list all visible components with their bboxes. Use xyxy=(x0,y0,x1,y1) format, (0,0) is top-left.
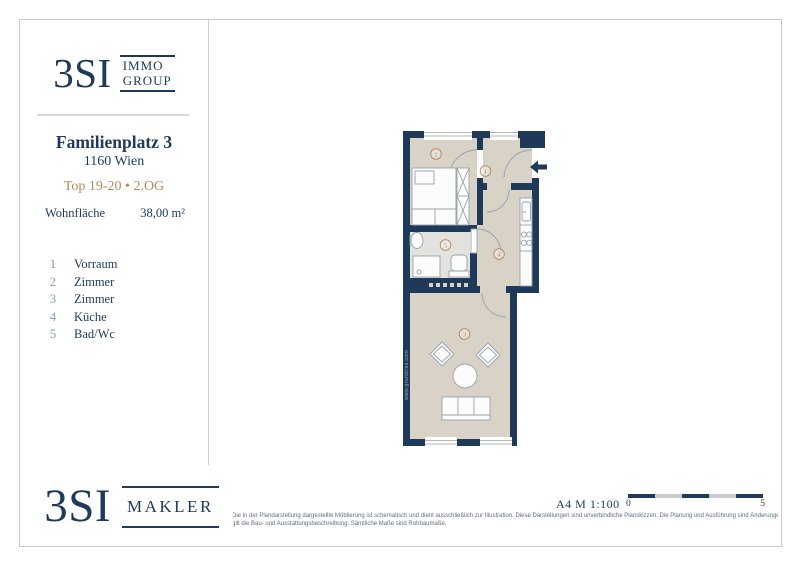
room-number: 1 xyxy=(46,257,60,272)
brand-words: IMMO GROUP xyxy=(120,55,175,91)
logo-divider xyxy=(37,114,189,116)
area-label: Wohnfläche xyxy=(45,206,105,221)
brand-word-2: GROUP xyxy=(123,74,172,88)
room-list-item: 1 Vorraum xyxy=(46,257,208,275)
room-label-5: 5 xyxy=(440,240,451,251)
area-row: Wohnfläche 38,00 m² xyxy=(20,206,208,221)
doorway-kitchen-room3 xyxy=(480,286,506,293)
room-list-item: 5 Bad/Wc xyxy=(46,327,208,345)
wardrobe xyxy=(457,168,469,225)
scale-segment xyxy=(628,494,655,498)
room-label-4: 4 xyxy=(494,249,505,260)
sofa xyxy=(442,397,490,420)
room-list-item: 4 Küche xyxy=(46,310,208,328)
scale-end-label: 5 xyxy=(760,499,765,509)
room-number: 4 xyxy=(46,310,60,325)
svg-text:2: 2 xyxy=(434,151,437,158)
watermark: www.grundriss.com xyxy=(404,350,410,400)
area-value: 38,00 m² xyxy=(140,206,185,221)
address-line1: Familienplatz 3 xyxy=(20,132,208,153)
disclaimer-line2: gilt die Bau- und Ausstattungsbeschreibu… xyxy=(232,520,778,528)
disclaimer: Die in der Plandarstellung dargestellte … xyxy=(232,512,778,528)
door-leaf xyxy=(471,229,477,253)
brand-logo-immogroup: 3SI IMMO GROUP xyxy=(20,53,208,94)
room-list-item: 3 Zimmer xyxy=(46,292,208,310)
window xyxy=(490,129,518,140)
sidebar-divider xyxy=(208,20,209,465)
room-name: Küche xyxy=(74,310,107,325)
disclaimer-line1: Die in der Plandarstellung dargestellte … xyxy=(232,512,778,520)
room-number: 3 xyxy=(46,292,60,307)
room-label-1: 1 xyxy=(480,166,491,177)
room-name: Zimmer xyxy=(74,275,114,290)
room-name: Bad/Wc xyxy=(74,327,115,342)
svg-text:1: 1 xyxy=(484,168,487,175)
scale-segment xyxy=(682,494,709,498)
room-name: Zimmer xyxy=(74,292,114,307)
scale-segment xyxy=(655,494,682,498)
footer-logo-makler: 3SI MAKLER xyxy=(30,467,233,546)
address-line2: 1160 Wien xyxy=(20,154,208,170)
room-name: Vorraum xyxy=(74,257,118,272)
scale-start-label: 0 xyxy=(626,499,631,509)
scale-segment xyxy=(709,494,736,498)
floor-plan: 2 1 5 4 3 www.grundriss.com xyxy=(395,123,550,453)
room-number: 5 xyxy=(46,327,60,342)
footer-brand-word: MAKLER xyxy=(122,486,219,528)
window xyxy=(425,437,457,448)
sidebar: 3SI IMMO GROUP Familienplatz 3 1160 Wien… xyxy=(20,20,208,460)
scale-bar-segments xyxy=(628,494,763,498)
room-label-2: 2 xyxy=(431,149,442,160)
room-number: 2 xyxy=(46,275,60,290)
room-list-item: 2 Zimmer xyxy=(46,275,208,293)
brand-word-1: IMMO xyxy=(123,59,172,73)
room-list: 1 Vorraum 2 Zimmer 3 Zimmer 4 Küche 5 Ba… xyxy=(20,257,208,345)
window xyxy=(480,437,512,448)
brand-text: 3SI xyxy=(53,53,111,94)
room-label-3: 3 xyxy=(459,329,470,340)
scale-segment xyxy=(736,494,763,498)
unit-info: Top 19-20 • 2.OG xyxy=(20,179,208,195)
shower xyxy=(413,256,440,277)
scale-bar: 0 5 xyxy=(628,494,763,498)
svg-text:5: 5 xyxy=(444,242,447,249)
footer-brand-text: 3SI xyxy=(44,483,111,530)
window xyxy=(424,129,472,140)
toilet xyxy=(449,255,469,277)
svg-text:3: 3 xyxy=(463,331,466,338)
round-table xyxy=(453,364,477,388)
bed xyxy=(412,168,456,225)
sheet-info: A4 M 1:100 xyxy=(556,497,620,512)
